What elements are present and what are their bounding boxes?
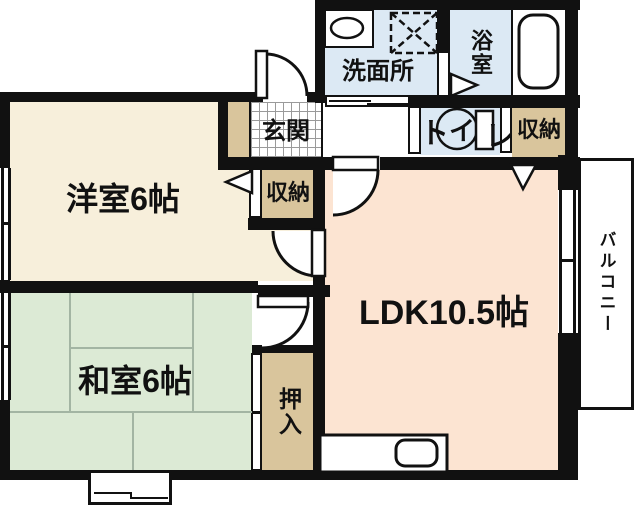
front-door-leaf (256, 51, 267, 98)
bay-window-pane (130, 497, 168, 499)
label-storage-western: 収納 (266, 182, 310, 204)
wall-segment (380, 157, 580, 170)
floor-plan: ト イ レ 洋室6帖 和室6帖 LDK10.5帖 玄関 洗面所 浴室 収納 収納… (0, 0, 640, 507)
western-door-leaf (312, 230, 325, 276)
door-storage-western (249, 168, 262, 218)
wall-segment (0, 281, 258, 293)
window-tick (562, 259, 573, 262)
wall-segment (315, 0, 325, 103)
label-western-room: 洋室6帖 (66, 183, 180, 215)
wall-segment (0, 470, 88, 480)
wall-segment (313, 170, 325, 230)
room-bathtub-zone (513, 10, 565, 95)
wall-segment (558, 333, 578, 480)
window-tick (4, 222, 8, 225)
window-japanese-left (1, 293, 11, 400)
front-door-swing-arc (266, 54, 307, 96)
wall-segment (315, 0, 580, 10)
door-storage-hall (500, 106, 512, 153)
room-toilet (420, 107, 500, 155)
window-ldk-balcony (559, 190, 576, 333)
bay-window-pane-joint (130, 492, 132, 499)
wall-segment (172, 470, 578, 480)
door-washroom-sliding (325, 95, 410, 107)
shoe-cabinet-divider (249, 100, 251, 157)
wall-segment (0, 92, 10, 168)
label-washroom: 洗面所 (342, 60, 414, 84)
wall-segment (252, 345, 313, 353)
door-tick (253, 411, 260, 414)
sliding-door-pane (329, 100, 371, 102)
wall-segment (218, 157, 333, 170)
label-bathroom: 浴室 (469, 29, 491, 77)
wall-segment (313, 297, 325, 472)
window-western-left (1, 168, 11, 280)
label-storage-hall: 収納 (517, 119, 561, 141)
wall-segment (258, 285, 330, 297)
door-closet-oshiire (251, 353, 262, 471)
label-ldk: LDK10.5帖 (359, 296, 529, 330)
bay-window-pane (94, 492, 132, 494)
wall-segment (307, 92, 325, 102)
bay-window (88, 470, 172, 505)
door-toilet (408, 106, 421, 154)
wall-segment (437, 10, 450, 52)
wall-segment (410, 95, 580, 108)
shoe-cabinet (228, 100, 249, 157)
door-bathroom (437, 51, 450, 97)
wall-segment (0, 400, 10, 480)
bath-zone-divider (511, 10, 513, 95)
entrance-step-line (321, 102, 323, 157)
wall-segment (565, 0, 578, 170)
window-tick (4, 345, 8, 348)
sliding-door-pane (367, 103, 408, 105)
room-japanese-door-nook (258, 297, 313, 345)
label-japanese-room: 和室6帖 (78, 365, 192, 397)
label-balcony: バルコニー (598, 231, 615, 336)
label-closet-oshiire: 押入 (277, 387, 300, 437)
label-entrance: 玄関 (262, 120, 310, 144)
